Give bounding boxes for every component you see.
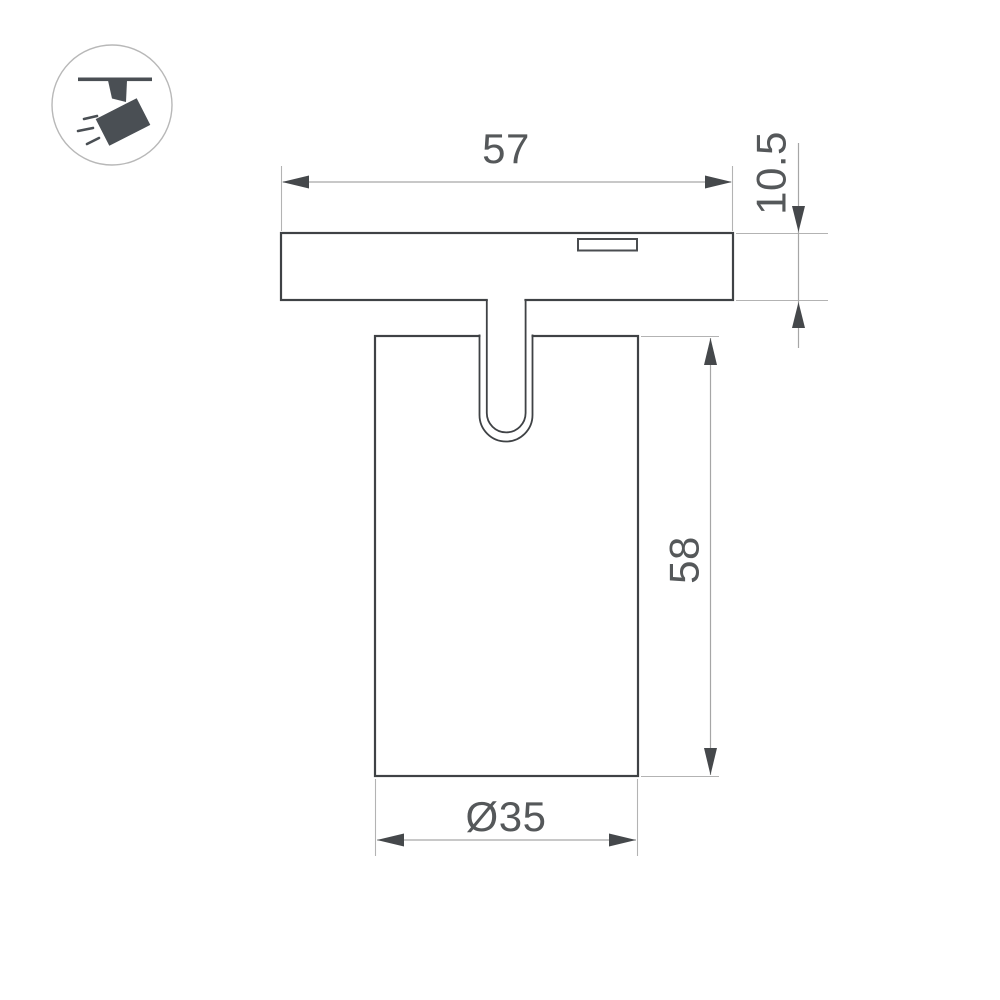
spotlight-dimension-drawing: 57 10.5 58 Ø35 [0, 0, 1000, 1000]
icon-circle-border [52, 45, 172, 165]
dimension-label-base-height: 10.5 [748, 131, 795, 215]
arrowhead-left-icon [282, 176, 309, 189]
arrowhead-up-icon [792, 302, 805, 328]
lamp-body [375, 336, 638, 776]
slot-gap [481, 334, 532, 339]
dimension-body-height: 58 [641, 337, 719, 777]
dimension-track-width: 57 [282, 125, 733, 231]
track-spotlight-icon [52, 45, 172, 165]
arrowhead-right-icon [705, 176, 732, 189]
arrowhead-left-icon [377, 834, 404, 847]
dimension-base-height: 10.5 [736, 131, 828, 348]
dimension-body-diameter: Ø35 [376, 779, 638, 856]
fixture-outline [281, 233, 733, 776]
track-mounting-slot [578, 239, 637, 251]
arrowhead-up-icon [704, 338, 717, 365]
arrowhead-down-icon [704, 748, 717, 775]
track-base [281, 233, 733, 300]
dimension-label-body-height: 58 [661, 536, 708, 584]
dimension-label-body-diameter: Ø35 [466, 793, 547, 840]
stem-gap [488, 297, 525, 302]
dimension-label-track-width: 57 [482, 125, 530, 172]
dimension-drawing-canvas: 57 10.5 58 Ø35 [0, 0, 1000, 1000]
arrowhead-right-icon [609, 834, 636, 847]
